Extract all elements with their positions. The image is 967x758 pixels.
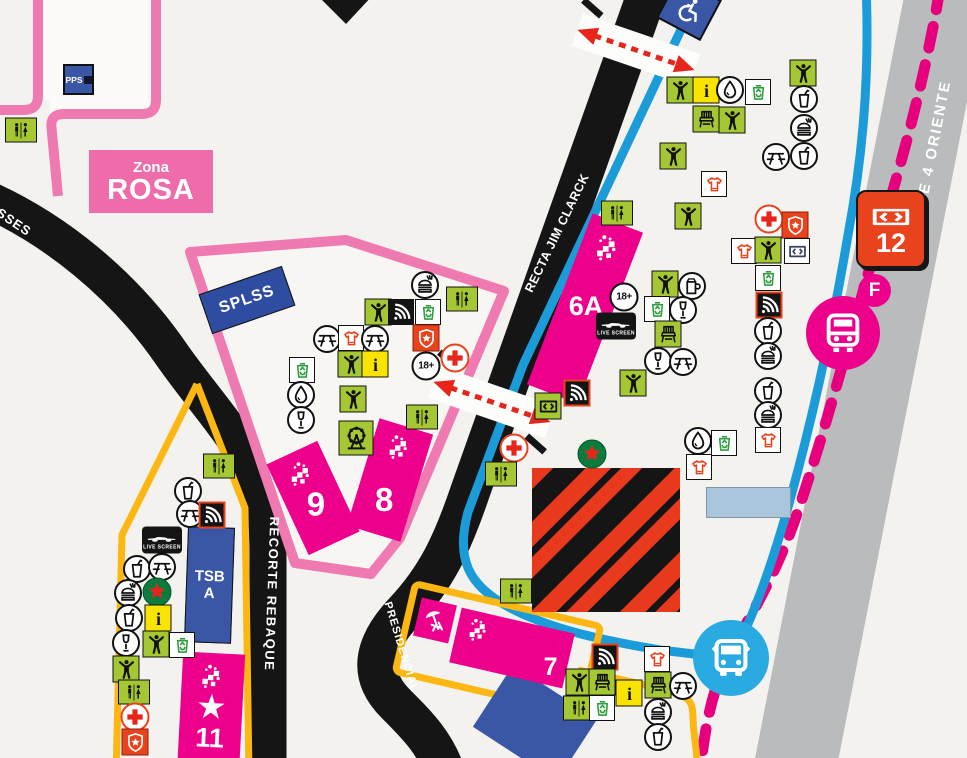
shirt-icon (701, 171, 727, 197)
cross-icon (441, 344, 470, 373)
ticket-gate-12: 12 (856, 190, 926, 268)
star-icon: ★ (197, 692, 225, 723)
burger-icon (644, 698, 672, 726)
picnic-icon (148, 553, 176, 581)
person-icon (675, 203, 702, 230)
train-station-marker (806, 296, 880, 370)
person-icon (660, 143, 687, 170)
age18-icon: 18+ (610, 283, 639, 312)
chair-icon (589, 669, 616, 696)
person-icon (790, 60, 817, 87)
wc-icon (446, 287, 478, 312)
track-corner-top (316, 0, 374, 24)
drop-icon (684, 427, 712, 455)
wc-icon (203, 454, 235, 479)
person-icon (667, 77, 694, 104)
signal-red-icon (756, 292, 783, 319)
wine-icon (112, 629, 140, 657)
picnic-icon (361, 325, 389, 353)
wc-icon (500, 579, 532, 604)
burger-icon (754, 401, 782, 429)
ticket-icon (868, 202, 914, 232)
zona-rosa-sign: Zona ROSA (89, 150, 213, 213)
pps-chip-icon (84, 76, 92, 84)
splss-label: SPLSS (217, 282, 277, 318)
stairs-icon (288, 460, 316, 488)
wc-icon (118, 680, 150, 705)
picnic-icon (669, 348, 697, 376)
heineken-icon (578, 440, 607, 469)
pps-label: PPS (65, 75, 82, 85)
race-car-icon (599, 316, 633, 331)
recycle-icon (289, 357, 315, 383)
footbridge (706, 487, 791, 518)
burger-icon (754, 342, 782, 370)
stairs-icon (593, 233, 623, 263)
live-screen-label: LIVE SCREEN (143, 545, 181, 550)
zona-building-fill (38, 0, 156, 114)
person-icon (652, 271, 679, 298)
grandstand-9-label: 9 (307, 487, 325, 520)
info-icon (362, 351, 389, 378)
tsb-a-building: TSB A (184, 526, 235, 644)
tsb-label-line2: A (203, 585, 214, 602)
live-screen-label: LIVE SCREEN (597, 331, 635, 336)
chair-icon (645, 672, 672, 699)
cup-icon (115, 604, 143, 632)
cross-icon (755, 205, 784, 234)
grandstand-11: ★ 11 (177, 651, 245, 758)
wc-icon (5, 118, 37, 143)
cross-icon (121, 703, 150, 732)
signal-red-icon (592, 644, 619, 671)
cup-icon (790, 85, 818, 113)
bus-station-marker (693, 620, 769, 696)
recycle-icon (711, 430, 737, 456)
person-icon (143, 631, 170, 658)
heineken-icon (143, 578, 172, 607)
picnic-icon (313, 325, 341, 353)
person-icon (113, 656, 140, 683)
shirt-icon (686, 454, 712, 480)
picnic-icon (669, 672, 697, 700)
ticket-green-icon (535, 393, 562, 420)
grandstand-11-label: 11 (195, 724, 225, 752)
wc-icon (406, 405, 438, 430)
cross-icon (500, 434, 529, 463)
station-f-label: F (869, 280, 881, 302)
wc-icon (485, 462, 517, 487)
shield-icon (782, 212, 809, 239)
recycle-icon (644, 296, 670, 322)
bus-icon (707, 634, 755, 682)
umbrella-icon (422, 608, 448, 634)
picnic-icon (762, 143, 790, 171)
train-icon (820, 310, 866, 356)
race-car-icon (145, 530, 179, 545)
person-icon (719, 107, 746, 134)
livescreen-icon: LIVE SCREEN (142, 527, 182, 554)
shield-icon (122, 729, 149, 756)
recycle-icon (589, 695, 615, 721)
shirt-icon (755, 427, 781, 453)
burger-icon (790, 114, 818, 142)
shield-icon (413, 325, 440, 352)
person-icon (340, 386, 367, 413)
pps-building: PPS (63, 64, 94, 95)
stairs-icon (198, 662, 227, 691)
drop-icon (716, 76, 744, 104)
ferris-icon (339, 421, 374, 456)
burger-icon (411, 271, 439, 299)
station-f-badge: F (858, 274, 891, 307)
cup-icon (754, 317, 782, 345)
recycle-icon (745, 79, 771, 105)
stairs-icon (386, 433, 414, 461)
signal-red-icon (199, 502, 226, 529)
person-icon (338, 351, 365, 378)
stairs-icon (466, 617, 492, 643)
wine-icon (287, 406, 315, 434)
info-icon (145, 605, 172, 632)
ticket-white-icon (784, 238, 810, 264)
circuit-venue-map: SSES RECTA JIM CLARCK RECORTE REBAQUE PR… (0, 0, 967, 758)
chair-icon (693, 106, 720, 133)
recycle-icon (415, 299, 441, 325)
livescreen-icon: LIVE SCREEN (596, 313, 636, 340)
grandstand-7-label: 7 (544, 655, 558, 680)
drop-icon (287, 381, 315, 409)
age18-icon: 18+ (412, 352, 441, 381)
chair-icon (655, 321, 682, 348)
signal-red-icon (564, 380, 591, 407)
recycle-icon (755, 265, 781, 291)
wc-icon (601, 201, 633, 226)
signal-icon (388, 299, 414, 325)
person-icon (620, 370, 647, 397)
zona-rosa-line2: ROSA (107, 176, 195, 204)
grandstand-8-label: 8 (375, 483, 393, 516)
cup-icon (790, 142, 818, 170)
tsb-label-line1: TSB (195, 567, 226, 585)
person-icon (755, 237, 782, 264)
cup-icon (644, 723, 672, 751)
gate-12-label: 12 (876, 230, 906, 257)
wheelchair-icon (669, 0, 710, 29)
wine-icon (644, 347, 672, 375)
eje4-road (791, 0, 951, 758)
recycle-icon (169, 632, 195, 658)
shirt-icon (731, 238, 757, 264)
stage-hatched-area (532, 468, 680, 612)
shirt-icon (644, 646, 670, 672)
burger-icon (114, 579, 142, 607)
info-icon (616, 680, 643, 707)
